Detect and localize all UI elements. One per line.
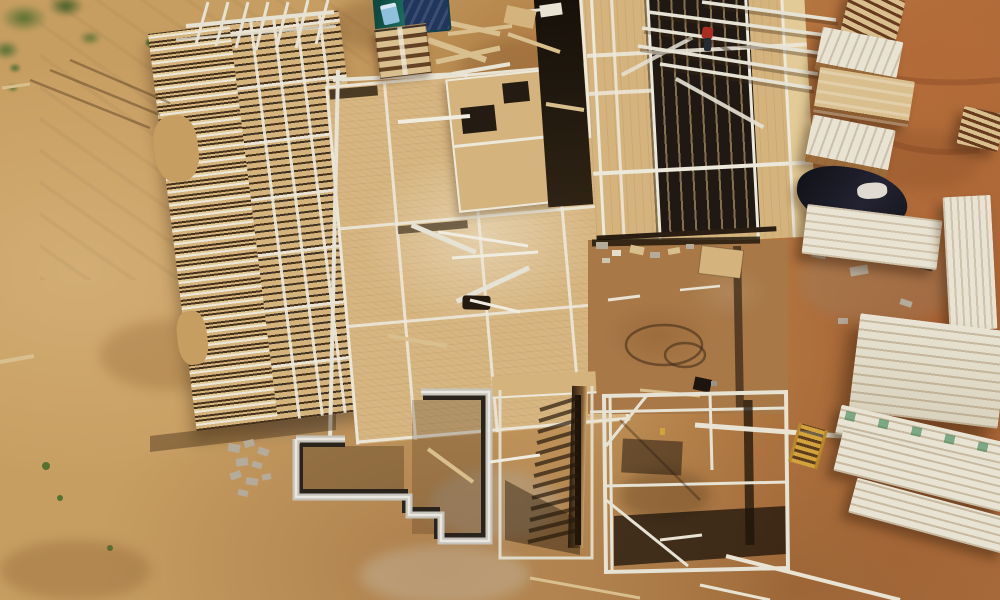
edge-beam: [330, 70, 338, 440]
construction-site-photo: [0, 0, 1000, 600]
courtyard-top-beam-shadow: [592, 240, 760, 243]
truss-tips: [176, 0, 336, 50]
courtyard-debris: [596, 242, 744, 435]
beam-shadows: [30, 60, 170, 128]
basement-pit-shadow: [302, 446, 404, 490]
white-cloth: [857, 182, 888, 200]
concrete-blocks: [227, 439, 271, 497]
worker-legs: [704, 38, 711, 51]
ladder-shadow-wall: [500, 386, 592, 558]
grass-tufts: [42, 462, 113, 551]
wooden-pallet: [374, 23, 432, 79]
garden-hose: [626, 325, 705, 367]
worker: [701, 22, 715, 54]
courtyard-bottom-plate: [590, 408, 786, 412]
long-beam-shadows: [640, 6, 838, 92]
blue-cooler: [380, 2, 400, 25]
vertical-lumber-stack: [943, 195, 998, 331]
bottom-right-framing: [604, 392, 788, 572]
foundation-walls: [296, 392, 489, 541]
pallet-stringer: [397, 27, 408, 75]
